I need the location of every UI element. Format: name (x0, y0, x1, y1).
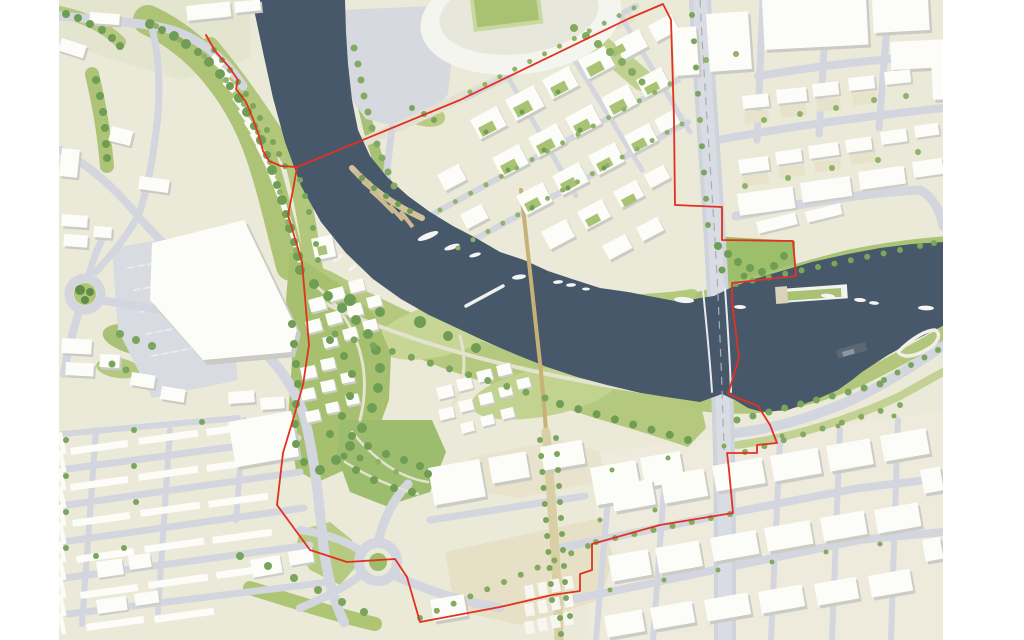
trees-west-shore (276, 151, 282, 157)
trees-wharf (395, 201, 401, 207)
trees-ne-street-3 (542, 51, 547, 56)
trees-headland (719, 267, 726, 274)
trees-ne-courtyards (556, 90, 561, 95)
trees-city-avenue-end (567, 613, 573, 619)
trees-ne-street-1 (514, 166, 519, 171)
trees-ne-courtyards (484, 130, 489, 135)
trees-ne-courtyards (520, 110, 525, 115)
trees-wharf (383, 193, 389, 199)
trees-headland (714, 242, 722, 250)
trees-ne-street-2 (500, 221, 505, 226)
trees-ne-street-1 (484, 182, 489, 187)
trees-park-specimen (414, 316, 426, 328)
trees-ne-street-1 (468, 191, 473, 196)
trees-north-bank (815, 264, 821, 270)
trees-ne-street-1 (637, 98, 642, 103)
trees-park-row-2 (593, 410, 601, 418)
buildings-rt-small (812, 81, 839, 97)
trees-avenue-row (695, 91, 701, 97)
trees-city-avenue-w (545, 549, 551, 555)
trees-ridge (62, 10, 70, 18)
trees-ne-street-2 (635, 146, 640, 151)
trees-rt-scatter (875, 157, 881, 163)
trees-hill-woods (345, 441, 355, 451)
trees-south-bank-1 (734, 417, 741, 424)
trees-wharf (359, 175, 365, 181)
trees-ridge (74, 14, 82, 22)
trees-boundary-street-1 (518, 572, 524, 578)
trees-west-shore (243, 91, 249, 97)
trees-ridge (103, 154, 111, 162)
trees-sw-scatter (63, 473, 69, 479)
trees-city-park (370, 476, 378, 484)
trees-ridge (98, 26, 106, 34)
buildings-topleft (63, 234, 88, 248)
trees-north-bank (881, 250, 887, 256)
margin-left (0, 0, 59, 640)
trees-ridge (277, 195, 287, 205)
trees-ne-street-1 (453, 199, 458, 204)
trees-ne-street-3 (482, 82, 487, 87)
trees-city-avenue-w (542, 501, 548, 507)
trees-ne-street-2 (560, 188, 565, 193)
trees-south-bank-2 (908, 362, 914, 368)
trees-south-bank-1 (845, 389, 852, 396)
trees-se-row (878, 408, 884, 414)
trees-south-bank-1 (765, 409, 772, 416)
trees-park-specimen (443, 331, 453, 341)
trees-ridge (226, 82, 234, 90)
trees-ne-courtyards (530, 206, 535, 211)
trees-sw-scatter (131, 463, 137, 469)
buildings-topleft (61, 338, 92, 355)
trees-headland (758, 268, 766, 276)
trees-east-bank (385, 169, 392, 176)
trees-city-avenue-w (547, 565, 553, 571)
trees-boundary-street-1 (551, 557, 557, 563)
trees-city-avenue-w (538, 453, 544, 459)
trees-city-corners (892, 414, 897, 419)
trees-ne-street-1 (622, 107, 627, 112)
trees-ridge-light (153, 23, 159, 29)
trees-roundabout-west (86, 288, 94, 296)
buildings-rt-small (884, 69, 911, 85)
trees-sw-scatter (93, 553, 99, 559)
trees-hill-woods (375, 363, 385, 373)
buildings-rt-industrial (872, 0, 930, 33)
trees-boundary-street-1 (568, 550, 574, 556)
trees-city-avenue-w (544, 533, 550, 539)
trees-city-corners (608, 588, 613, 593)
trees-park-row-2 (666, 431, 674, 439)
trees-city-park (341, 453, 348, 460)
trees-west-shore (270, 139, 276, 145)
trees-park-row-1 (370, 342, 377, 349)
trees-rt-scatter (903, 93, 909, 99)
trees-boundary-street-1 (434, 608, 440, 614)
trees-city-park (352, 466, 360, 474)
trees-ridge (273, 181, 281, 189)
trees-city-avenue-w (549, 597, 555, 603)
trees-rt-scatter (742, 183, 748, 189)
trees-hill-woods (348, 370, 356, 378)
trees-rt-scatter (829, 165, 835, 171)
buildings-rt-industrial (706, 11, 752, 72)
trees-left-mid (116, 330, 124, 338)
buildings-rt-small (848, 75, 875, 91)
trees-ridge-light (201, 53, 207, 59)
trees-hill-woods (357, 423, 367, 433)
trees-city-avenue-e (559, 531, 565, 537)
trees-forecourt (431, 117, 437, 123)
trees-ne-street-2 (665, 130, 670, 135)
buildings-city-right (922, 537, 944, 562)
trees-city-park (416, 462, 424, 470)
trees-ne-street-1 (652, 90, 657, 95)
trees-ne-street-1 (591, 124, 596, 129)
trees-east-bank (369, 125, 376, 132)
u-building-court (317, 245, 328, 256)
trees-west-shore (257, 115, 263, 121)
trees-wharf (407, 208, 413, 214)
trees-se-row (800, 431, 806, 437)
trees-city-avenue-e (556, 483, 562, 489)
trees-west-shore (302, 193, 308, 199)
trees-rt-scatter (915, 149, 921, 155)
trees-ridge (194, 48, 202, 56)
trees-hill-woods (292, 440, 300, 448)
trees-city-avenue-e (562, 579, 568, 585)
trees-hill-woods (346, 392, 354, 400)
trees-hill-woods (373, 383, 383, 393)
trees-east-bank (355, 61, 362, 68)
trees-south-bank-2 (935, 347, 941, 353)
trees-east-bank (374, 141, 381, 148)
trees-headland (746, 264, 754, 272)
trees-south-bank-2 (881, 377, 887, 383)
trees-hill-woods (292, 360, 300, 368)
trees-city-corners (716, 568, 721, 573)
masterplan-map (0, 0, 1024, 640)
trees-city-avenue-w (541, 485, 547, 491)
trees-hill-woods (351, 315, 361, 325)
trees-city-corners (770, 560, 775, 565)
trees-city-avenue-e (560, 547, 566, 553)
trees-ridge (108, 34, 116, 42)
margin-right (943, 0, 1024, 640)
trees-sw-scatter (121, 545, 127, 551)
trees-city-corners (722, 444, 727, 449)
trees-headland (770, 262, 778, 270)
trees-park-row-1 (465, 371, 472, 378)
trees-north-bank (782, 271, 788, 277)
trees-hill-woods (323, 291, 333, 301)
trees-ridge (101, 124, 109, 132)
trees-park-specimen (375, 307, 385, 317)
trees-park-row-1 (503, 383, 510, 390)
trees-park-row-1 (522, 389, 529, 396)
trees-rt-scatter (797, 111, 803, 117)
trees-city-corners (824, 550, 829, 555)
trees-city-corners (878, 542, 883, 547)
trees-hill-woods (309, 279, 319, 289)
marina-pier-head (775, 286, 788, 304)
trees-boundary-street-1 (501, 579, 507, 585)
trees-roundabout-west (75, 285, 85, 295)
trees-park-row-1 (484, 377, 491, 384)
trees-ridge (215, 69, 225, 79)
trees-ne-street-2 (680, 122, 685, 127)
trees-park-row-2 (556, 400, 564, 408)
roundabout-city-island (369, 553, 387, 571)
trees-park-row-1 (351, 336, 358, 343)
trees-north-bank (864, 254, 870, 260)
trees-ridge-light (223, 77, 229, 83)
trees-city-park-light (393, 469, 399, 475)
trees-south-bank-1 (797, 401, 804, 408)
trees-avenue-row (691, 38, 697, 44)
trees-north-bank (897, 247, 903, 253)
trees-rt-scatter (761, 117, 767, 123)
trees-stadium-east (618, 58, 626, 66)
trees-ne-courtyards (566, 186, 571, 191)
trees-boundary-street-1 (467, 593, 473, 599)
trees-se-row (742, 449, 748, 455)
trees-se-row (858, 414, 864, 420)
trees-ne-street-2 (515, 212, 520, 217)
marina-pier-head (775, 286, 788, 304)
trees-rt-scatter (733, 51, 739, 57)
trees-ne-street-3 (632, 6, 637, 11)
trees-city-avenue-e (555, 467, 561, 473)
trees-ne-street-2 (456, 246, 461, 251)
trees-city-park-light (375, 459, 381, 465)
trees-ne-street-3 (617, 13, 622, 18)
trees-west-shore (313, 241, 319, 247)
trees-west-shore (310, 225, 316, 231)
trees-city-park (408, 488, 416, 496)
trees-city-corners (662, 578, 667, 583)
trees-city-avenue-e (557, 499, 563, 505)
trees-hill-woods (331, 455, 341, 465)
trees-wharf (371, 185, 377, 191)
trees-city-park (382, 450, 390, 458)
trees-ne-street-3 (557, 44, 562, 49)
trees-city-avenue-w (537, 437, 543, 443)
trees-ne-street-2 (590, 171, 595, 176)
trees-ne-street-1 (576, 132, 581, 137)
trees-avenue-row (705, 222, 711, 228)
trees-rt-scatter (871, 97, 877, 103)
trees-hill-woods (315, 465, 325, 475)
trees-ne-street-2 (620, 155, 625, 160)
trees-hill-woods (363, 329, 373, 339)
trees-north-bank-extra (917, 243, 923, 249)
trees-south-bank-2 (895, 370, 901, 376)
trees-city-avenue-end (558, 631, 564, 637)
trees-city-park (400, 456, 408, 464)
trees-south-bank-1 (749, 413, 756, 420)
trees-west-shore (250, 103, 256, 109)
trees-sw-scatter (236, 552, 244, 560)
trees-avenue-row (689, 12, 695, 18)
trees-ne-courtyards (542, 148, 547, 153)
trees-ridge (102, 140, 110, 148)
trees-ne-street-3 (602, 21, 607, 26)
trees-headland (724, 250, 732, 258)
trees-north-bank (831, 261, 837, 267)
trees-east-bank (351, 45, 358, 52)
trees-park-row-2 (647, 426, 655, 434)
trees-sw-scatter (264, 562, 272, 570)
trees-left-mid (148, 342, 156, 350)
trees-park-row-2 (684, 436, 692, 444)
trees-ne-street-3 (572, 36, 577, 41)
trees-hill-woods (300, 458, 308, 466)
masterplan-figure (0, 0, 1024, 640)
trees-city-avenue-e (558, 515, 564, 521)
trees-ne-street-1 (530, 157, 535, 162)
trees-hill-woods (338, 412, 346, 420)
trees-ne-street-1 (560, 140, 565, 145)
trees-park-row-1 (427, 360, 434, 367)
trees-west-shore (264, 127, 270, 133)
trees-ridge-light (177, 37, 183, 43)
trees-park-row-1 (332, 331, 339, 338)
trees-south-bank-2 (922, 355, 928, 361)
trees-ridge (99, 108, 107, 116)
trees-avenue-row (703, 196, 709, 202)
trees-ne-street-2 (545, 196, 550, 201)
trees-rt-scatter (697, 117, 703, 123)
buildings-topleft (260, 396, 285, 410)
trees-ne-street-1 (438, 208, 443, 213)
trees-ne-street-2 (485, 229, 490, 234)
buildings-topleft (93, 226, 112, 238)
trees-stadium-east (606, 48, 614, 56)
trees-ne-street-2 (470, 237, 475, 242)
trees-rt-scatter (703, 57, 709, 63)
trees-park-specimen (344, 294, 356, 306)
trees-avenue-row (701, 170, 707, 176)
trees-city-avenue-w (543, 517, 549, 523)
trees-park-row-1 (446, 365, 453, 372)
trees-ne-street-1 (499, 174, 504, 179)
buildings-topleft (61, 214, 88, 228)
trees-left-mid (123, 367, 130, 374)
trees-ridge (158, 26, 166, 34)
trees-city-avenue-end (557, 615, 563, 621)
trees-city-park (390, 484, 398, 492)
trees-ne-courtyards (506, 168, 511, 173)
buildings-topleft (59, 148, 80, 178)
trees-ne-street-3 (497, 74, 502, 79)
trees-se-row (820, 426, 826, 432)
trees-avenue-row (693, 65, 699, 71)
trees-east-bank (391, 183, 398, 190)
trees-stadium-east (570, 24, 578, 32)
u-building-court (317, 245, 328, 256)
trees-park-row-2 (629, 421, 637, 429)
trees-city-park (364, 442, 372, 450)
trees-city-corners (836, 424, 841, 429)
trees-ridge-light (277, 189, 283, 195)
trees-hill-woods (326, 336, 334, 344)
trees-hill-woods (288, 320, 296, 328)
trees-east-bank (361, 93, 368, 100)
trees-city-avenue-e (563, 595, 569, 601)
trees-city-avenue-e (554, 451, 560, 457)
trees-city-park (348, 432, 356, 440)
trees-avenue-row (699, 143, 705, 149)
margin-left (0, 0, 59, 640)
trees-sw-scatter (314, 586, 322, 594)
trees-west-shore (306, 209, 312, 215)
trees-park-row-1 (542, 395, 549, 402)
trees-boundary-street-1 (535, 565, 541, 571)
trees-ridge (92, 76, 100, 84)
trees-sw-scatter (131, 427, 137, 433)
trees-headland (734, 258, 742, 266)
trees-stadium-east (594, 40, 602, 48)
trees-ne-street-3 (512, 67, 517, 72)
trees-east-bank (365, 109, 372, 116)
trees-hill-woods (337, 303, 347, 313)
trees-ne-street-3 (527, 59, 532, 64)
trees-city-avenue-w (539, 469, 545, 475)
trees-hill-woods (326, 430, 334, 438)
trees-south-bank-1 (781, 405, 788, 412)
trees-sw-scatter (63, 509, 69, 515)
trees-city-corners (653, 508, 658, 513)
trees-park-row-2 (574, 405, 582, 413)
trees-sw-scatter (360, 608, 368, 616)
trees-left-mid (132, 336, 140, 344)
trees-sw-scatter (63, 437, 69, 443)
trees-south-bank-1 (861, 385, 868, 392)
trees-south-bank-1 (813, 397, 820, 404)
boats (582, 288, 590, 291)
trees-ne-street-2 (650, 138, 655, 143)
trees-boundary-street-1 (484, 586, 490, 592)
buildings-rt-industrial (762, 0, 868, 50)
trees-sw-scatter (338, 598, 346, 606)
trees-rt-scatter (833, 105, 839, 111)
trees-stadium-east (639, 79, 646, 86)
trees-rt-scatter (785, 175, 791, 181)
trees-ridge (267, 165, 277, 175)
trees-city-avenue-e (553, 435, 559, 441)
margin-right (943, 0, 1024, 640)
trees-headland (780, 252, 788, 260)
trees-hill-woods (340, 352, 348, 360)
trees-city-corners (598, 518, 603, 523)
trees-ne-street-1 (668, 82, 673, 87)
trees-west-shore (315, 257, 321, 263)
trees-west-shore (297, 177, 303, 183)
trees-park-specimen (471, 343, 481, 353)
trees-se-row (897, 402, 903, 408)
buildings-rt-small (742, 93, 769, 109)
trees-boundary-street-1 (585, 543, 591, 549)
buildings-topleft (228, 390, 255, 404)
trees-south-bank-1 (829, 393, 836, 400)
trees-north-bank (799, 267, 805, 273)
trees-stadium-east (628, 68, 636, 76)
trees-hill-woods (294, 380, 302, 388)
trees-city-park (357, 455, 364, 462)
trees-east-bank (379, 155, 386, 162)
